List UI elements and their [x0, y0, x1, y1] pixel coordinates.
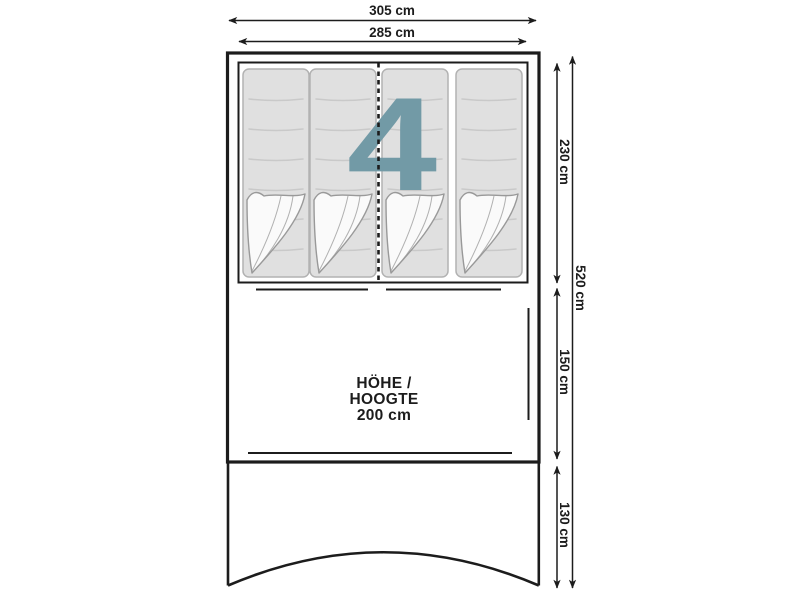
dim-label-porch-depth: 130 cm [557, 502, 572, 548]
height-note: HÖHE / HOOGTE 200 cm [350, 375, 419, 424]
height-note-line2: HOOGTE [350, 391, 419, 408]
dim-label-total-depth: 520 cm [573, 265, 588, 311]
tent-floorplan-svg: 4 305 cm 285 cm 230 cm 150 cm 130 cm 520… [0, 0, 800, 600]
porch-front-curve [228, 552, 539, 585]
capacity-number: 4 [347, 71, 437, 219]
height-note-line3: 200 cm [357, 407, 411, 424]
dim-label-living-depth: 150 cm [557, 349, 572, 395]
dim-label-outer-width: 305 cm [369, 3, 415, 18]
height-note-line1: HÖHE / [356, 375, 412, 392]
dim-label-inner-width: 285 cm [369, 25, 415, 40]
dim-label-cabin-depth: 230 cm [557, 139, 572, 185]
sleeping-mat-4 [456, 69, 522, 277]
sleeping-mat-1 [243, 69, 309, 277]
tent-dimension-diagram: 4 305 cm 285 cm 230 cm 150 cm 130 cm 520… [0, 0, 800, 600]
